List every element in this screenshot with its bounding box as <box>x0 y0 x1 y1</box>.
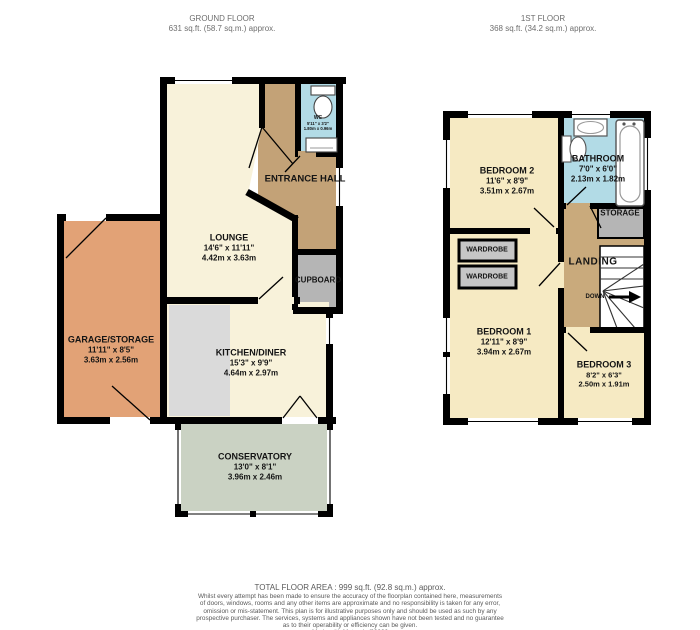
bedroom1-label: BEDROOM 1 12'11" x 8'9" 3.94m x 2.67m <box>477 327 532 358</box>
bedroom3-label: BEDROOM 3 8'2" x 6'3" 2.50m x 1.91m <box>577 360 632 389</box>
first-floor-area: 368 sq.ft. (34.2 sq.m.) approx. <box>490 24 597 34</box>
wc-label: WC 5'11" x 3'2" 1.80m x 0.96m <box>304 115 332 131</box>
footer: TOTAL FLOOR AREA : 999 sq.ft. (92.8 sq.m… <box>196 582 504 630</box>
disclaimer-line: of doors, windows, rooms and any other i… <box>196 600 504 607</box>
total-floor-area: TOTAL FLOOR AREA : 999 sq.ft. (92.8 sq.m… <box>196 582 504 593</box>
wc-sink-icon <box>306 138 337 152</box>
stairs-down-label: DOWN <box>586 294 605 300</box>
bedroom2-label: BEDROOM 2 11'6" x 8'9" 3.51m x 2.67m <box>480 166 535 197</box>
ground-floor-area: 631 sq.ft. (58.7 sq.m.) approx. <box>169 24 276 34</box>
ground-floor-header: GROUND FLOOR 631 sq.ft. (58.7 sq.m.) app… <box>169 14 276 34</box>
storage-label: STORAGE <box>600 209 639 218</box>
wardrobe-a-label: WARDROBE <box>466 247 508 254</box>
bathroom-sink-icon <box>574 119 607 136</box>
conservatory-label: CONSERVATORY 13'0" x 8'1" 3.96m x 2.46m <box>218 452 292 483</box>
disclaimer-line: prospective purchaser. The services, sys… <box>196 615 504 622</box>
garage-label: GARAGE/STORAGE 11'11" x 8'5" 3.63m x 2.5… <box>68 335 154 366</box>
first-floor-title: 1ST FLOOR <box>490 14 597 24</box>
kitchen-label: KITCHEN/DINER 15'3" x 9'9" 4.64m x 2.97m <box>216 348 287 379</box>
first-floor-header: 1ST FLOOR 368 sq.ft. (34.2 sq.m.) approx… <box>490 14 597 34</box>
entrance-hall-label: ENTRANCE HALL <box>265 174 346 185</box>
ground-floor-title: GROUND FLOOR <box>169 14 276 24</box>
wardrobe-b-label: WARDROBE <box>466 274 508 281</box>
ground-floor-plan <box>57 77 346 517</box>
cupboard-label: CUPBOARD <box>295 276 341 285</box>
floorplan-drawing <box>0 0 700 630</box>
disclaimer-line: Whilst every attempt has been made to en… <box>196 593 504 600</box>
disclaimer-line: omission or mis-statement. This plan is … <box>196 608 504 615</box>
bathroom-label: BATHROOM 7'0" x 6'0" 2.13m x 1.82m <box>571 154 625 185</box>
lounge-label: LOUNGE 14'6" x 11'11" 4.42m x 3.63m <box>202 233 256 264</box>
floorplan: GROUND FLOOR 631 sq.ft. (58.7 sq.m.) app… <box>0 0 700 630</box>
landing-label: LANDING <box>568 257 617 268</box>
